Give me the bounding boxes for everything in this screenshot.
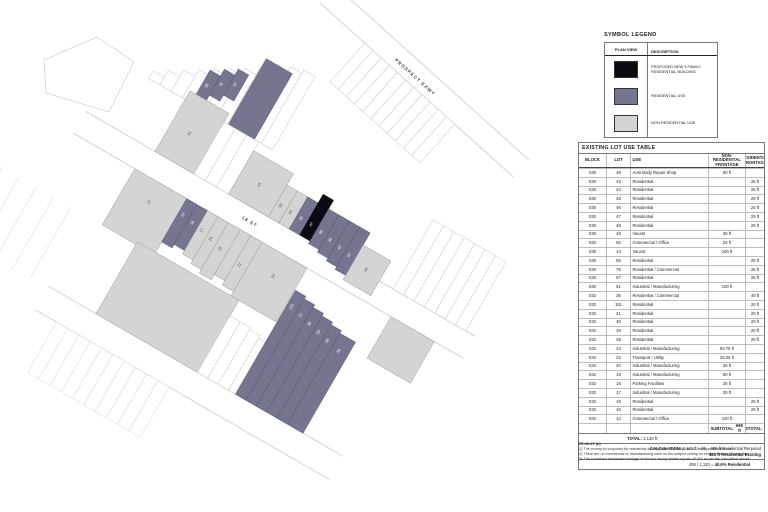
cell-block: 030 (579, 266, 606, 274)
legend-header: PLAN VIEW DESCRIPTION (605, 43, 717, 56)
parcel-outline (44, 37, 134, 112)
table-row: 032 19 Industrial / Manufacturing 50 ft (579, 370, 764, 379)
cell-res (745, 283, 764, 291)
cell-use: Industrial / Manufacturing (630, 345, 708, 353)
cell-nonres (708, 213, 745, 221)
cell-block: 032 (579, 363, 606, 371)
block032-rear-residential: 151 21 30 29 28 36 (235, 290, 363, 433)
cell-block: 032 (579, 336, 606, 344)
cell-res: 25 ft (745, 407, 764, 415)
cell-nonres (708, 336, 745, 344)
cell-use: Transport / Utility (630, 354, 708, 362)
cell-res (745, 363, 764, 371)
legend-rows: PROPOSED NEW 3 FAMILY RESIDENTIAL BUILDI… (605, 56, 717, 137)
cell-lot: 18 (606, 380, 630, 388)
cell-use: Parking Facilities (630, 380, 708, 388)
cell-block: 032 (579, 380, 606, 388)
cell-use: Vacant (630, 248, 708, 256)
cell-use: Residential (630, 327, 708, 335)
cell-lot: 47 (606, 213, 630, 221)
cell-block: 030 (579, 213, 606, 221)
cell-block: 032 (579, 345, 606, 353)
cell-use: Industrial / Manufacturing (630, 363, 708, 371)
legend-description: RESIDENTIAL USE (648, 91, 717, 102)
cell-lot: 15 (606, 407, 630, 415)
cell-use: Commercial / Office (630, 239, 708, 247)
cell-res: 25 ft (745, 213, 764, 221)
cell-res: 25 ft (745, 204, 764, 212)
cell-nonres: 25.25 ft (708, 354, 745, 362)
table-row: 032 22 Transport / Utility 25.25 ft (579, 353, 764, 362)
cell-use: Residential (630, 275, 708, 283)
cell-nonres (708, 187, 745, 195)
cell-lot: 48 (606, 222, 630, 230)
table-row: 032 12 Commercial / Office 100 ft (579, 414, 764, 423)
cell-block: 032 (579, 407, 606, 415)
far-parcel-lines (0, 157, 71, 281)
cell-block: 030 (579, 222, 606, 230)
cell-use: Residential (630, 204, 708, 212)
cell-block: 032 (579, 310, 606, 318)
table-row: 032 36 Residential / Commercial 40 ft (579, 291, 764, 300)
cell-res (745, 231, 764, 239)
cell-block: 030 (579, 231, 606, 239)
cell-lot: 44 (606, 187, 630, 195)
cell-lot: 61 (606, 283, 630, 291)
cell-use: Industrial / Manufacturing (630, 371, 708, 379)
table-row: 032 30 Residential 20 ft (579, 318, 764, 327)
table-row: 032 151 Residential 20 ft (579, 300, 764, 309)
prospect-lot-strips (330, 43, 455, 163)
cell-lot: 36 (606, 292, 630, 300)
table-body: 030 39 Auto Body Repair Shop 60 ft 030 4… (579, 168, 764, 423)
legend-swatch (614, 88, 638, 105)
cell-block: 030 (579, 169, 606, 177)
table-row: 032 28 Residential 20 ft (579, 335, 764, 344)
cell-res (745, 248, 764, 256)
table-header-row: BLOCK LOT USE NON-RESIDENTIAL FRONTAGE R… (579, 154, 764, 168)
table-row: 032 18 Parking Facilities 25 ft (579, 379, 764, 388)
table-row: 032 16 Residential 25 ft (579, 397, 764, 406)
cell-nonres: 60 ft (708, 169, 745, 177)
table-row: 030 45 Residential 25 ft (579, 194, 764, 203)
cell-res (745, 371, 764, 379)
legend-title: SYMBOL LEGEND (604, 32, 657, 38)
col-block: BLOCK (579, 154, 606, 167)
subtotal-res: SUBTOTAL: 455 ft (745, 424, 764, 433)
table-row: 030 44 Residential 25 ft (579, 186, 764, 195)
cell-block: 030 (579, 187, 606, 195)
cell-lot: 22 (606, 354, 630, 362)
cell-lot: 24 (606, 345, 630, 353)
cell-lot: 16 (606, 398, 630, 406)
col-use: USE (630, 154, 708, 167)
legend-swatch-cell (605, 110, 648, 137)
table-row: 030 14 Vacant 100 ft (579, 247, 764, 256)
legend-description: PROPOSED NEW 3 FAMILY RESIDENTIAL BUILDI… (648, 62, 717, 78)
cell-res: 20 ft (745, 310, 764, 318)
cell-nonres: 100 ft (708, 415, 745, 423)
legend-row: NON-RESIDENTIAL USE (605, 110, 717, 137)
cell-nonres (708, 319, 745, 327)
cell-use: Residential (630, 195, 708, 203)
notes-list: (1) The zoning lot proposed for resident… (578, 447, 764, 461)
cell-res: 25 ft (745, 222, 764, 230)
cell-use: Residential (630, 301, 708, 309)
cell-use: Auto Body Repair Shop (630, 169, 708, 177)
legend-row: PROPOSED NEW 3 FAMILY RESIDENTIAL BUILDI… (605, 56, 717, 83)
legend-description: NON-RESIDENTIAL USE (648, 118, 717, 129)
cell-lot: 50 (606, 239, 630, 247)
cell-block: 030 (579, 204, 606, 212)
cell-nonres: 64.75 ft (708, 345, 745, 353)
cell-use: Vacant (630, 231, 708, 239)
table-row: 032 20 Industrial / Manufacturing 25 ft (579, 362, 764, 371)
col-res-frontage: RESIDENTIAL FRONTAGE (745, 154, 764, 167)
table-row: 030 55 Residential 25 ft (579, 256, 764, 265)
note-item: (3) The combined residential frontage of… (578, 457, 764, 462)
cell-res: 40 ft (745, 292, 764, 300)
cell-lot: 14 (606, 248, 630, 256)
cell-block: 030 (579, 195, 606, 203)
legend-swatch (614, 61, 638, 78)
cell-use: Residential (630, 257, 708, 265)
table-row: 032 29 Residential 20 ft (579, 326, 764, 335)
cell-use: Residential (630, 187, 708, 195)
cell-nonres (708, 222, 745, 230)
cell-nonres (708, 178, 745, 186)
cell-use: Residential (630, 319, 708, 327)
cell-nonres (708, 195, 745, 203)
cell-block: 032 (579, 319, 606, 327)
cell-block: 030 (579, 257, 606, 265)
zoning-notes: ZR 42-47 (a) (1) The zoning lot proposed… (578, 441, 764, 462)
cell-nonres (708, 301, 745, 309)
cell-lot: 12 (606, 415, 630, 423)
cell-block: 032 (579, 415, 606, 423)
cell-lot: 49 (606, 231, 630, 239)
cell-block: 030 (579, 239, 606, 247)
cell-use: Residential (630, 178, 708, 186)
legend-row: RESIDENTIAL USE (605, 83, 717, 110)
cell-lot: 17 (606, 389, 630, 397)
table-row: 030 75 Residential / Commercial 25 ft (579, 265, 764, 274)
cell-block: 030 (579, 248, 606, 256)
cell-use: Residential / Commercial (630, 292, 708, 300)
cell-res (745, 415, 764, 423)
cell-res: 20 ft (745, 319, 764, 327)
site-plan: PROSPECT EXWY (0, 0, 575, 512)
cell-block: 032 (579, 389, 606, 397)
non-residential-lot (367, 317, 434, 384)
cell-lot: 19 (606, 371, 630, 379)
cell-nonres: 25 ft (708, 231, 745, 239)
subtotal-row: SUBTOTAL: 665 ft SUBTOTAL: 455 ft (579, 423, 764, 433)
legend-col-plan-view: PLAN VIEW (615, 47, 637, 52)
table-row: 030 50 Commercial / Office 25 ft (579, 238, 764, 247)
cell-lot: 39 (606, 169, 630, 177)
table-row: 030 48 Residential 25 ft (579, 221, 764, 230)
cell-block: 032 (579, 327, 606, 335)
table-row: 030 61 Industrial / Manufacturing 100 ft (579, 282, 764, 291)
cell-res: 25 ft (745, 195, 764, 203)
legend-swatch (614, 115, 638, 132)
cell-res (745, 380, 764, 388)
cell-nonres: 50 ft (708, 371, 745, 379)
cell-res: 20 ft (745, 336, 764, 344)
cell-nonres (708, 292, 745, 300)
cell-block: 030 (579, 275, 606, 283)
table-row: 032 17 Industrial / Manufacturing 25 ft (579, 388, 764, 397)
cell-nonres (708, 327, 745, 335)
cell-nonres: 100 ft (708, 248, 745, 256)
cell-nonres (708, 266, 745, 274)
cell-use: Commercial / Office (630, 415, 708, 423)
cell-block: 030 (579, 178, 606, 186)
cell-use: Residential (630, 398, 708, 406)
cell-lot: 151 (606, 301, 630, 309)
cell-lot: 29 (606, 327, 630, 335)
legend-col-description: DESCRIPTION (651, 49, 678, 54)
subtotal-nonres: SUBTOTAL: 665 ft (708, 424, 745, 433)
cell-res: 25 ft (745, 266, 764, 274)
cell-lot: 20 (606, 363, 630, 371)
legend-swatch-cell (605, 56, 648, 83)
cell-lot: 45 (606, 195, 630, 203)
legend-swatch-cell (605, 83, 648, 110)
cell-nonres: 25 ft (708, 380, 745, 388)
cell-lot: 30 (606, 319, 630, 327)
east-strips (393, 220, 506, 331)
block-fabric: 55 75 57 61 14 50 49 48 47 (0, 0, 548, 512)
cell-res: 20 ft (745, 327, 764, 335)
cell-res (745, 345, 764, 353)
table-title: EXISTING LOT USE TABLE (579, 143, 764, 154)
cell-res: 25 ft (745, 178, 764, 186)
cell-block: 032 (579, 371, 606, 379)
street-label-18st: 18 ST (241, 215, 258, 228)
table-row: 030 57 Residential 25 ft (579, 274, 764, 283)
cell-nonres (708, 275, 745, 283)
cell-nonres (708, 407, 745, 415)
cell-lot: 55 (606, 257, 630, 265)
cell-block: 032 (579, 354, 606, 362)
cell-use: Residential (630, 222, 708, 230)
cell-res (745, 354, 764, 362)
table-row: 030 43 Residential 25 ft (579, 177, 764, 186)
cell-use: Residential / Commercial (630, 266, 708, 274)
cell-lot: 21 (606, 310, 630, 318)
cell-nonres (708, 204, 745, 212)
cell-res (745, 169, 764, 177)
cell-use: Residential (630, 336, 708, 344)
table-row: 030 47 Residential 25 ft (579, 212, 764, 221)
cell-res: 20 ft (745, 301, 764, 309)
table-row: 030 49 Vacant 25 ft (579, 230, 764, 239)
cell-use: Industrial / Manufacturing (630, 283, 708, 291)
cell-nonres: 25 ft (708, 363, 745, 371)
existing-lot-use-table: EXISTING LOT USE TABLE BLOCK LOT USE NON… (578, 142, 765, 470)
cell-use: Residential (630, 407, 708, 415)
cell-lot: 46 (606, 204, 630, 212)
cell-res: 25 ft (745, 275, 764, 283)
table-row: 030 39 Auto Body Repair Shop 60 ft (579, 168, 764, 177)
col-lot: LOT (606, 154, 630, 167)
table-row: 030 46 Residential 25 ft (579, 203, 764, 212)
cell-res: 25 ft (745, 187, 764, 195)
table-row: 032 24 Industrial / Manufacturing 64.75 … (579, 344, 764, 353)
cell-use: Industrial / Manufacturing (630, 389, 708, 397)
cell-res: 25 ft (745, 257, 764, 265)
zoning-diagram-page: PROSPECT EXWY (0, 0, 768, 512)
cell-res: 25 ft (745, 398, 764, 406)
cell-lot: 28 (606, 336, 630, 344)
cell-use: Residential (630, 310, 708, 318)
cell-nonres (708, 257, 745, 265)
cell-lot: 43 (606, 178, 630, 186)
cell-nonres: 25 ft (708, 239, 745, 247)
cell-lot: 75 (606, 266, 630, 274)
table-row: 032 15 Residential 25 ft (579, 406, 764, 415)
cell-block: 032 (579, 301, 606, 309)
cell-nonres: 25 ft (708, 389, 745, 397)
cell-nonres (708, 398, 745, 406)
notes-heading: ZR 42-47 (a) (578, 441, 764, 446)
cell-use: Residential (630, 213, 708, 221)
cell-block: 032 (579, 292, 606, 300)
cell-res (745, 389, 764, 397)
cell-nonres (708, 310, 745, 318)
cell-block: 030 (579, 283, 606, 291)
symbol-legend: PLAN VIEW DESCRIPTION PROPOSED NEW 3 FAM… (604, 42, 718, 138)
cell-nonres: 100 ft (708, 283, 745, 291)
table-row: 032 21 Residential 20 ft (579, 309, 764, 318)
cell-block: 032 (579, 398, 606, 406)
col-nonres-frontage: NON-RESIDENTIAL FRONTAGE (708, 154, 745, 167)
cell-lot: 57 (606, 275, 630, 283)
prospect-expressway: PROSPECT EXWY (285, 0, 528, 216)
cell-res (745, 239, 764, 247)
